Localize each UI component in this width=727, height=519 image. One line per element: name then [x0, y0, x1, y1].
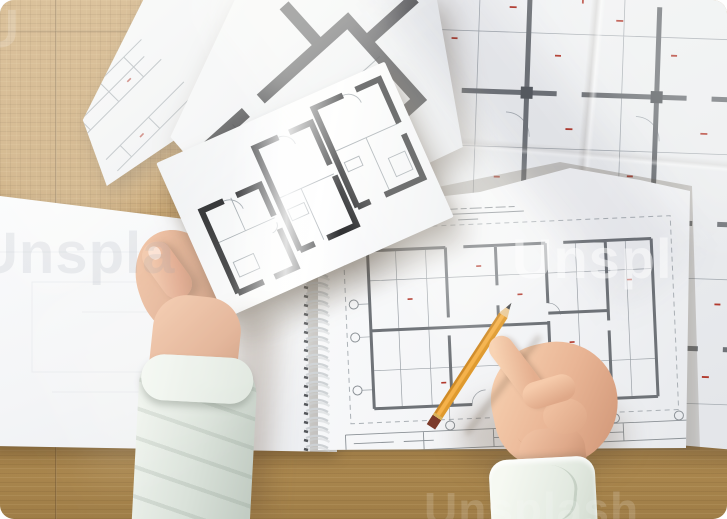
photo-architect-desk: Unspl Unspla Unsplash U [0, 0, 727, 519]
paper-sheen [156, 62, 454, 319]
left-sleeve-cuff [140, 353, 254, 405]
left-sleeve [132, 353, 259, 519]
right-sleeve-cuff [488, 455, 598, 519]
cuff-fold [502, 461, 580, 519]
held-plan-sheet [156, 62, 454, 319]
thumb-nail [146, 244, 164, 262]
